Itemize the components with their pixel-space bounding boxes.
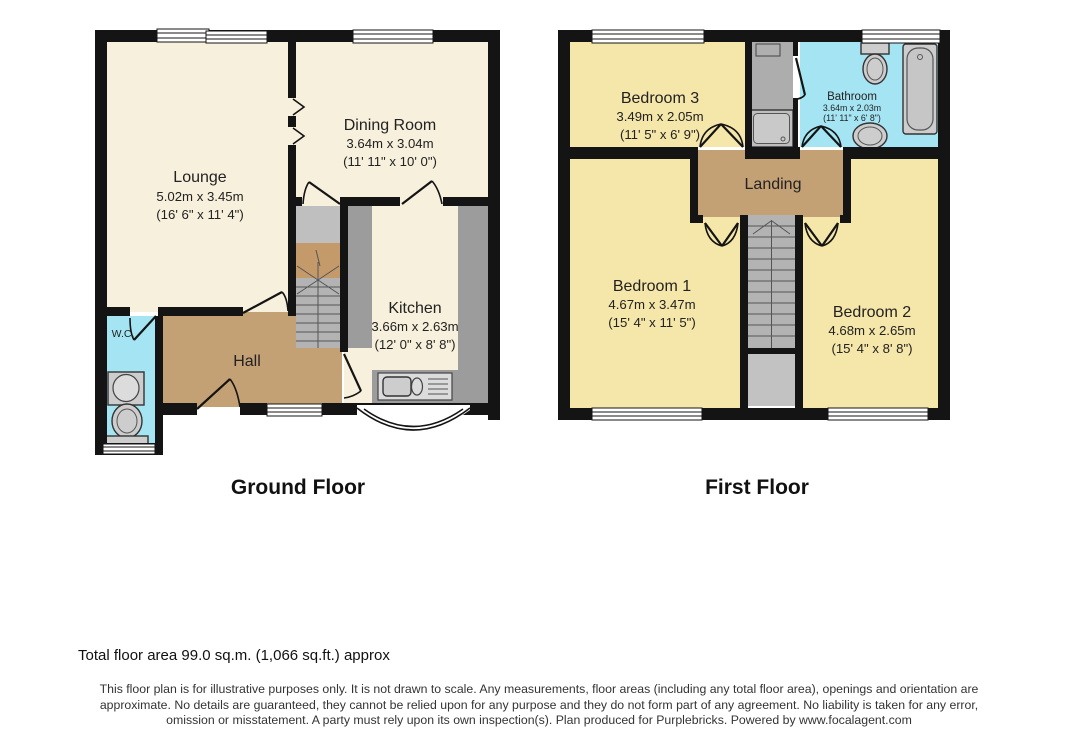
- bathroom-label: Bathroom: [827, 91, 877, 103]
- bedroom3-label: Bedroom 3: [621, 90, 699, 107]
- bedroom1-metric: 4.67m x 3.47m: [608, 297, 695, 312]
- floorplan-page: Lounge 5.02m x 3.45m (16' 6" x 11' 4") D…: [0, 0, 1078, 742]
- hall-label: Hall: [233, 353, 261, 370]
- shower-tray: [750, 110, 793, 147]
- bay-window: [357, 404, 470, 431]
- lounge-label: Lounge: [173, 169, 226, 186]
- ground-floor-title: Ground Floor: [231, 476, 365, 499]
- first-floor-stairs: [748, 215, 795, 348]
- hall-window: [267, 404, 322, 416]
- bathroom-basin: [853, 123, 887, 149]
- stairwell-cupboard: [748, 354, 795, 406]
- bedroom3-imperial: (11' 5" x 6' 9"): [620, 127, 700, 142]
- lounge-window: [157, 29, 267, 43]
- bedroom1-window: [592, 408, 702, 420]
- wc-window: [103, 444, 155, 454]
- bedroom1-label: Bedroom 1: [613, 278, 691, 295]
- kitchen-imperial: (12' 0" x 8' 8"): [374, 337, 455, 352]
- bedroom3-metric: 3.49m x 2.05m: [616, 109, 703, 124]
- dining-metric: 3.64m x 3.04m: [346, 136, 433, 151]
- bathroom-metric: 3.64m x 2.03m: [823, 103, 881, 113]
- bathroom-window: [862, 30, 940, 43]
- total-floor-area: Total floor area 99.0 sq.m. (1,066 sq.ft…: [78, 647, 390, 664]
- bedroom2-label: Bedroom 2: [833, 304, 911, 321]
- kitchen-label: Kitchen: [388, 300, 441, 317]
- bedroom1-imperial: (15' 4" x 11' 5"): [608, 315, 695, 330]
- bathroom-imperial: (11' 11" x 6' 8"): [823, 113, 881, 123]
- kitchen-metric: 3.66m x 2.63m: [371, 319, 458, 334]
- landing-label: Landing: [745, 176, 802, 193]
- bedroom2-imperial: (15' 4" x 8' 8"): [831, 341, 912, 356]
- bathroom-toilet: [861, 43, 889, 84]
- lounge-metric: 5.02m x 3.45m: [156, 189, 243, 204]
- bedroom3-window: [592, 30, 704, 43]
- wc-basin: [108, 372, 144, 405]
- floorplan-drawing: Lounge 5.02m x 3.45m (16' 6" x 11' 4") D…: [0, 0, 1078, 620]
- dining-window: [353, 30, 433, 43]
- kitchen-counter-right: [458, 206, 488, 403]
- kitchen-counter-left: [348, 206, 372, 348]
- bedroom2-window: [828, 408, 928, 420]
- understairs-cupboard: [296, 206, 340, 243]
- dining-label: Dining Room: [344, 117, 436, 134]
- disclaimer-text: This floor plan is for illustrative purp…: [83, 682, 995, 729]
- bedroom2-metric: 4.68m x 2.65m: [828, 323, 915, 338]
- first-floor-title: First Floor: [705, 476, 809, 499]
- bathtub: [903, 44, 937, 134]
- lounge-imperial: (16' 6" x 11' 4"): [156, 207, 243, 222]
- ground-floor-plan: Lounge 5.02m x 3.45m (16' 6" x 11' 4") D…: [95, 29, 500, 499]
- cupboard-tank: [756, 44, 780, 56]
- dining-imperial: (11' 11" x 10' 0"): [343, 154, 437, 169]
- sink-unit: [378, 373, 452, 400]
- first-floor-plan: Bedroom 3 3.49m x 2.05m (11' 5" x 6' 9")…: [558, 30, 950, 499]
- wc-label: W.C.: [112, 328, 135, 340]
